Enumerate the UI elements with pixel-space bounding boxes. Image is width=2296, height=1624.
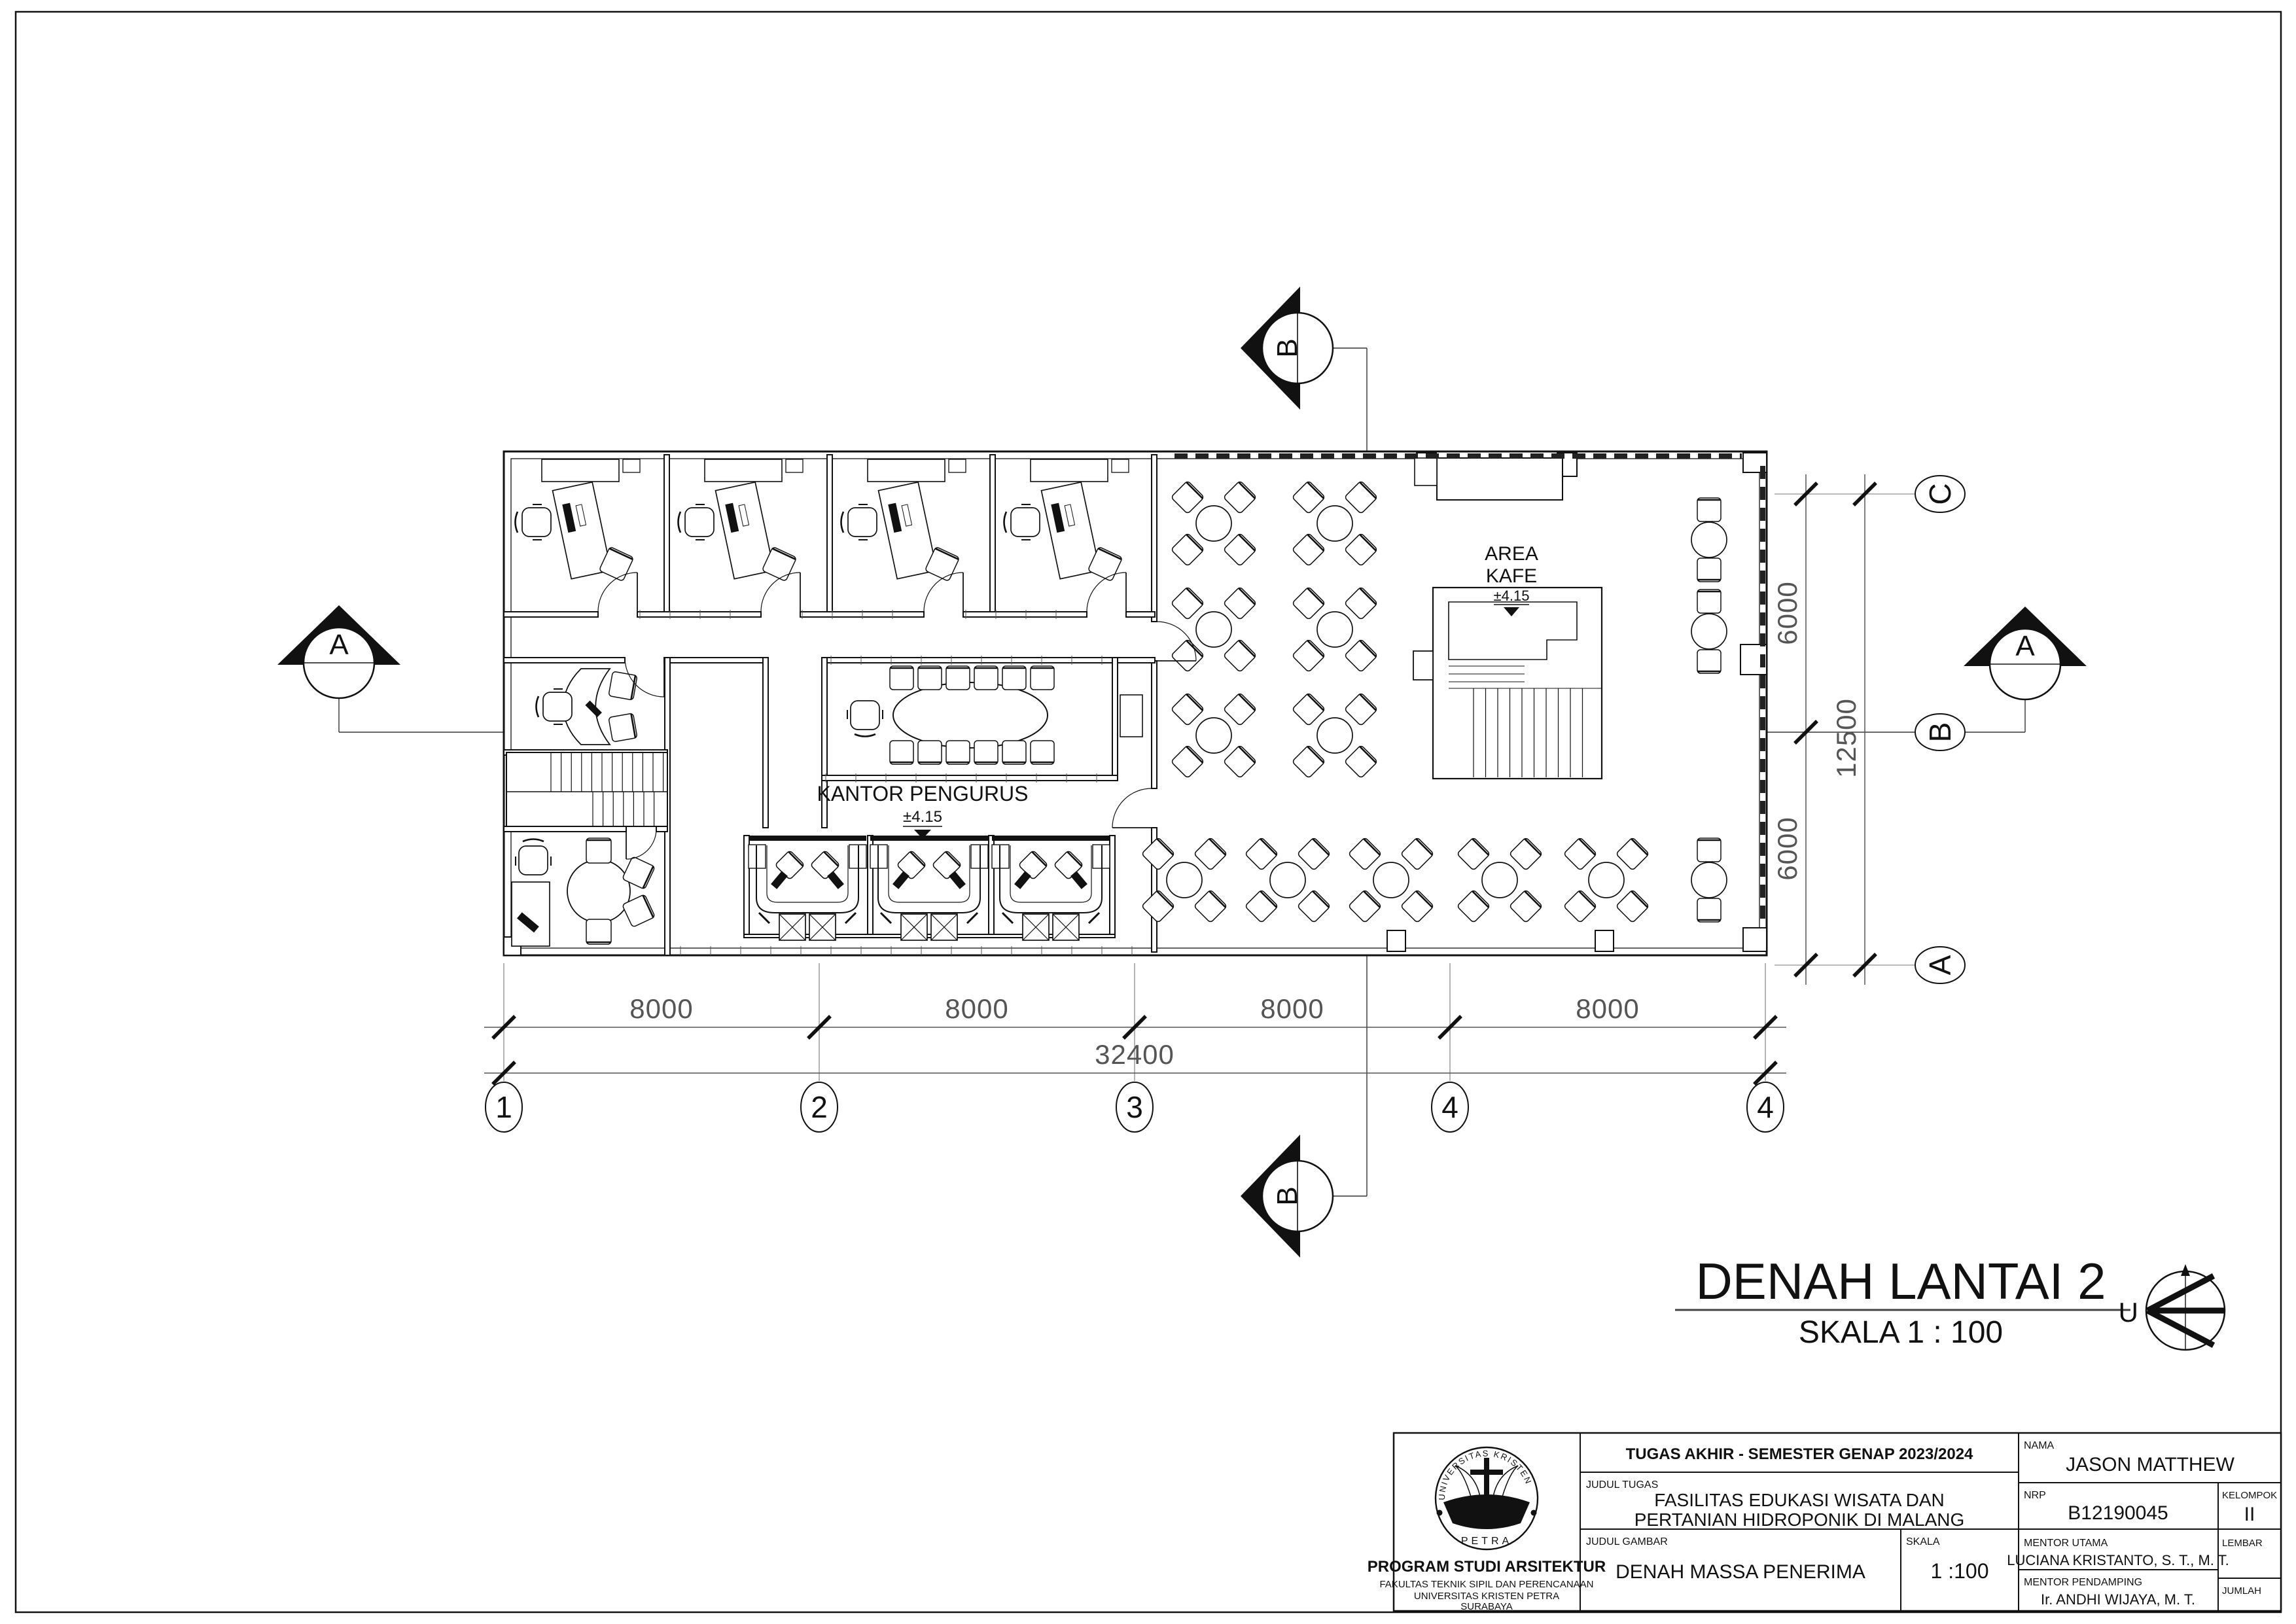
section-marker-B-top: B xyxy=(1241,287,1333,410)
nama-label: NAMA xyxy=(2024,1440,2055,1451)
grid-bubble-label: 3 xyxy=(1126,1090,1143,1124)
shelf xyxy=(623,459,640,472)
wall xyxy=(637,612,761,617)
drawing-sheet: 800080008000800032400123446000600012500C… xyxy=(0,0,2296,1624)
chair-seat xyxy=(918,666,942,690)
chair-seat xyxy=(848,508,877,537)
chair-icon xyxy=(1697,558,1721,582)
judul-gambar-label: JUDUL GAMBAR xyxy=(1586,1536,1668,1547)
wall xyxy=(1152,455,1157,622)
title-block: UNIVERSITAS KRISTEN PETRA PROGRAM STUDI … xyxy=(1368,1433,2281,1612)
table-top xyxy=(1589,862,1624,898)
chair-seat xyxy=(974,666,998,690)
chair-seat xyxy=(1697,838,1721,862)
crate-icon xyxy=(779,914,805,940)
grid-bubble-label: 2 xyxy=(811,1090,828,1124)
grid-bubble-label: 4 xyxy=(1441,1090,1458,1124)
nrp-label: NRP xyxy=(2024,1490,2046,1501)
judul-gambar-value: DENAH MASSA PENERIMA xyxy=(1616,1561,1865,1583)
plan-scale: SKALA 1 : 100 xyxy=(1799,1315,2003,1350)
chair-icon xyxy=(1697,898,1721,922)
shelf xyxy=(1112,459,1129,472)
wall xyxy=(504,658,625,663)
plan-title: DENAH LANTAI 2 xyxy=(1695,1252,2106,1310)
chair-seat xyxy=(890,741,913,764)
chair-seat xyxy=(1697,558,1721,582)
judul-tugas-2: PERTANIAN HIDROPONIK DI MALANG xyxy=(1634,1509,1965,1530)
column xyxy=(1595,930,1614,951)
shelf xyxy=(949,459,966,472)
table-top xyxy=(1317,506,1352,541)
chair-icon xyxy=(1031,666,1054,690)
chair-icon xyxy=(1697,838,1721,862)
chair-seat xyxy=(1697,498,1721,521)
mentor-utama-label: MENTOR UTAMA xyxy=(2024,1538,2108,1549)
cafe-counter xyxy=(1437,458,1563,500)
table-top xyxy=(1317,612,1352,647)
dimension-label: 8000 xyxy=(945,993,1008,1024)
wall xyxy=(1152,661,1157,788)
chair-seat xyxy=(918,741,942,764)
skala-label: SKALA xyxy=(1906,1536,1940,1547)
table-top xyxy=(1317,718,1352,753)
section-letter-A: A xyxy=(2015,630,2035,662)
table-top xyxy=(1691,522,1727,557)
wall xyxy=(827,455,832,617)
grid-bubble-label: B xyxy=(1923,722,1957,743)
chair-seat xyxy=(522,508,551,537)
grid-bubble-label: C xyxy=(1923,483,1957,504)
chair-seat xyxy=(543,692,572,721)
section-letter-B: B xyxy=(1271,1186,1303,1205)
wall xyxy=(824,658,1155,663)
sideboard xyxy=(1120,695,1142,737)
cabinet xyxy=(542,459,619,482)
chair-icon xyxy=(974,741,998,764)
wall xyxy=(504,612,598,617)
table-top xyxy=(1196,718,1231,753)
table-top xyxy=(1691,862,1727,898)
cabinet xyxy=(868,459,945,482)
chair-seat xyxy=(946,666,970,690)
kota-text: SURABAYA xyxy=(1460,1601,1512,1612)
wall xyxy=(763,658,768,828)
area-kafe-label-1: AREA xyxy=(1485,543,1538,565)
grid-bubble-label: A xyxy=(1923,955,1957,975)
program-studi-text: PROGRAM STUDI ARSITEKTUR xyxy=(1368,1558,1606,1576)
mentor-pendamping-value: Ir. ANDHI WIJAYA, M. T. xyxy=(2041,1591,2195,1608)
north-label: U xyxy=(2119,1297,2138,1328)
skala-value: 1 :100 xyxy=(1931,1559,1989,1583)
chair-seat xyxy=(1697,898,1721,922)
chair-seat xyxy=(519,846,548,875)
chair-icon xyxy=(586,838,611,863)
chair-seat xyxy=(974,741,998,764)
chair-icon xyxy=(609,671,637,700)
dimension-label: 8000 xyxy=(1260,993,1324,1024)
dimension-label: 32400 xyxy=(1095,1039,1174,1070)
chair-icon xyxy=(1697,650,1721,673)
area-kafe-label-2: KAFE xyxy=(1486,565,1537,587)
round-table xyxy=(567,860,630,923)
chair-seat xyxy=(1031,666,1054,690)
meeting-table xyxy=(893,682,1048,748)
universitas-text: UNIVERSITAS KRISTEN PETRA xyxy=(1414,1591,1559,1602)
shelf xyxy=(786,459,803,472)
chair-seat xyxy=(1697,590,1721,613)
shelf xyxy=(870,836,988,841)
chair-icon xyxy=(586,919,611,944)
chair-seat xyxy=(1002,666,1026,690)
chair-icon xyxy=(1697,498,1721,521)
table-top xyxy=(1482,862,1517,898)
grid-bubble-label: 1 xyxy=(495,1090,512,1124)
wall xyxy=(664,455,669,617)
chair-icon xyxy=(1031,741,1054,764)
chair-icon xyxy=(1002,666,1026,690)
chair-seat xyxy=(1011,508,1040,537)
chair-icon xyxy=(974,666,998,690)
chair-icon xyxy=(609,713,637,742)
nama-value: JASON MATTHEW xyxy=(2066,1454,2234,1475)
wall xyxy=(1110,836,1115,937)
chair-icon xyxy=(890,741,913,764)
chair-seat xyxy=(586,919,611,944)
crate-icon xyxy=(1023,914,1049,940)
table-top xyxy=(1270,862,1305,898)
grid-bubble-label: 4 xyxy=(1757,1090,1774,1124)
cabinet xyxy=(1031,459,1108,482)
chair-icon xyxy=(1697,590,1721,613)
stair-stub xyxy=(1413,651,1433,680)
kantor-level-text: ±4.15 xyxy=(903,808,942,826)
dimension-label: 8000 xyxy=(1576,993,1639,1024)
wall xyxy=(822,775,1118,781)
chair-seat xyxy=(946,741,970,764)
table-top xyxy=(1196,506,1231,541)
wall xyxy=(1112,658,1118,781)
wall xyxy=(664,658,766,663)
table-top xyxy=(1373,862,1409,898)
kelompok-label: KELOMPOK xyxy=(2222,1490,2277,1501)
desk xyxy=(512,882,550,946)
fakultas-text: FAKULTAS TEKNIK SIPIL DAN PERENCANAAN xyxy=(1379,1579,1593,1590)
table-top xyxy=(1167,862,1202,898)
jumlah-label: JUMLAH xyxy=(2222,1585,2261,1597)
section-marker-B-bottom: B xyxy=(1241,1135,1333,1258)
crate-icon xyxy=(1053,914,1079,940)
chair-icon xyxy=(890,666,913,690)
nrp-value: B12190045 xyxy=(2068,1502,2168,1524)
floor-plan-drawing: 800080008000800032400123446000600012500C… xyxy=(0,0,2296,1624)
kelompok-value: II xyxy=(2244,1504,2255,1525)
column xyxy=(1743,928,1767,951)
shelf xyxy=(992,836,1110,841)
section-letter-A: A xyxy=(329,629,349,661)
chair-seat xyxy=(1002,741,1026,764)
wall xyxy=(1126,612,1155,617)
table-top xyxy=(1196,612,1231,647)
university-logo-icon: UNIVERSITAS KRISTEN PETRA xyxy=(1436,1447,1538,1549)
crate-icon xyxy=(901,914,927,940)
chair-icon xyxy=(918,741,942,764)
kafe-level-text: ±4.15 xyxy=(1494,588,1530,604)
section-letter-B: B xyxy=(1271,338,1303,357)
chair-icon xyxy=(1002,741,1026,764)
chair-seat xyxy=(586,838,611,863)
shelf xyxy=(749,836,866,841)
section-marker-A-right: A xyxy=(1964,607,2087,699)
crate-icon xyxy=(809,914,836,940)
chair-seat xyxy=(1697,650,1721,673)
dimension-label: 12500 xyxy=(1831,698,1862,778)
judul-tugas-1: FASILITAS EDUKASI WISATA DAN xyxy=(1654,1490,1944,1510)
chair-seat xyxy=(851,701,879,730)
dimension-label: 6000 xyxy=(1772,817,1803,880)
tugas-header: TUGAS AKHIR - SEMESTER GENAP 2023/2024 xyxy=(1626,1445,1973,1463)
chair-icon xyxy=(918,666,942,690)
wall xyxy=(963,612,1087,617)
cabinet xyxy=(705,459,782,482)
dimension-label: 8000 xyxy=(629,993,693,1024)
logo-bottom-text: PETRA xyxy=(1461,1536,1512,1547)
wall xyxy=(504,826,626,832)
mentor-utama-value: LUCIANA KRISTANTO, S. T., M. T. xyxy=(2007,1552,2229,1568)
section-marker-A-left: A xyxy=(277,605,400,698)
lembar-label: LEMBAR xyxy=(2222,1538,2263,1549)
drawing-title: DENAH LANTAI 2 SKALA 1 : 100 xyxy=(1675,1252,2130,1350)
cafe-counter-end xyxy=(1415,458,1437,485)
chair-seat xyxy=(685,508,714,537)
column xyxy=(1387,930,1405,951)
judul-tugas-label: JUDUL TUGAS xyxy=(1586,1479,1658,1491)
stair-west xyxy=(506,752,667,826)
north-arrow-icon: U xyxy=(2119,1264,2225,1350)
chair-icon xyxy=(946,741,970,764)
crate-icon xyxy=(931,914,957,940)
chair-seat xyxy=(1031,741,1054,764)
table-top xyxy=(1691,614,1727,649)
kantor-pengurus-label: KANTOR PENGURUS xyxy=(817,782,1028,805)
wall xyxy=(656,826,667,832)
dimension-label: 6000 xyxy=(1772,581,1803,644)
chair-seat xyxy=(890,666,913,690)
wall xyxy=(990,455,995,617)
mentor-pendamping-label: MENTOR PENDAMPING xyxy=(2024,1577,2142,1588)
chair-icon xyxy=(946,666,970,690)
